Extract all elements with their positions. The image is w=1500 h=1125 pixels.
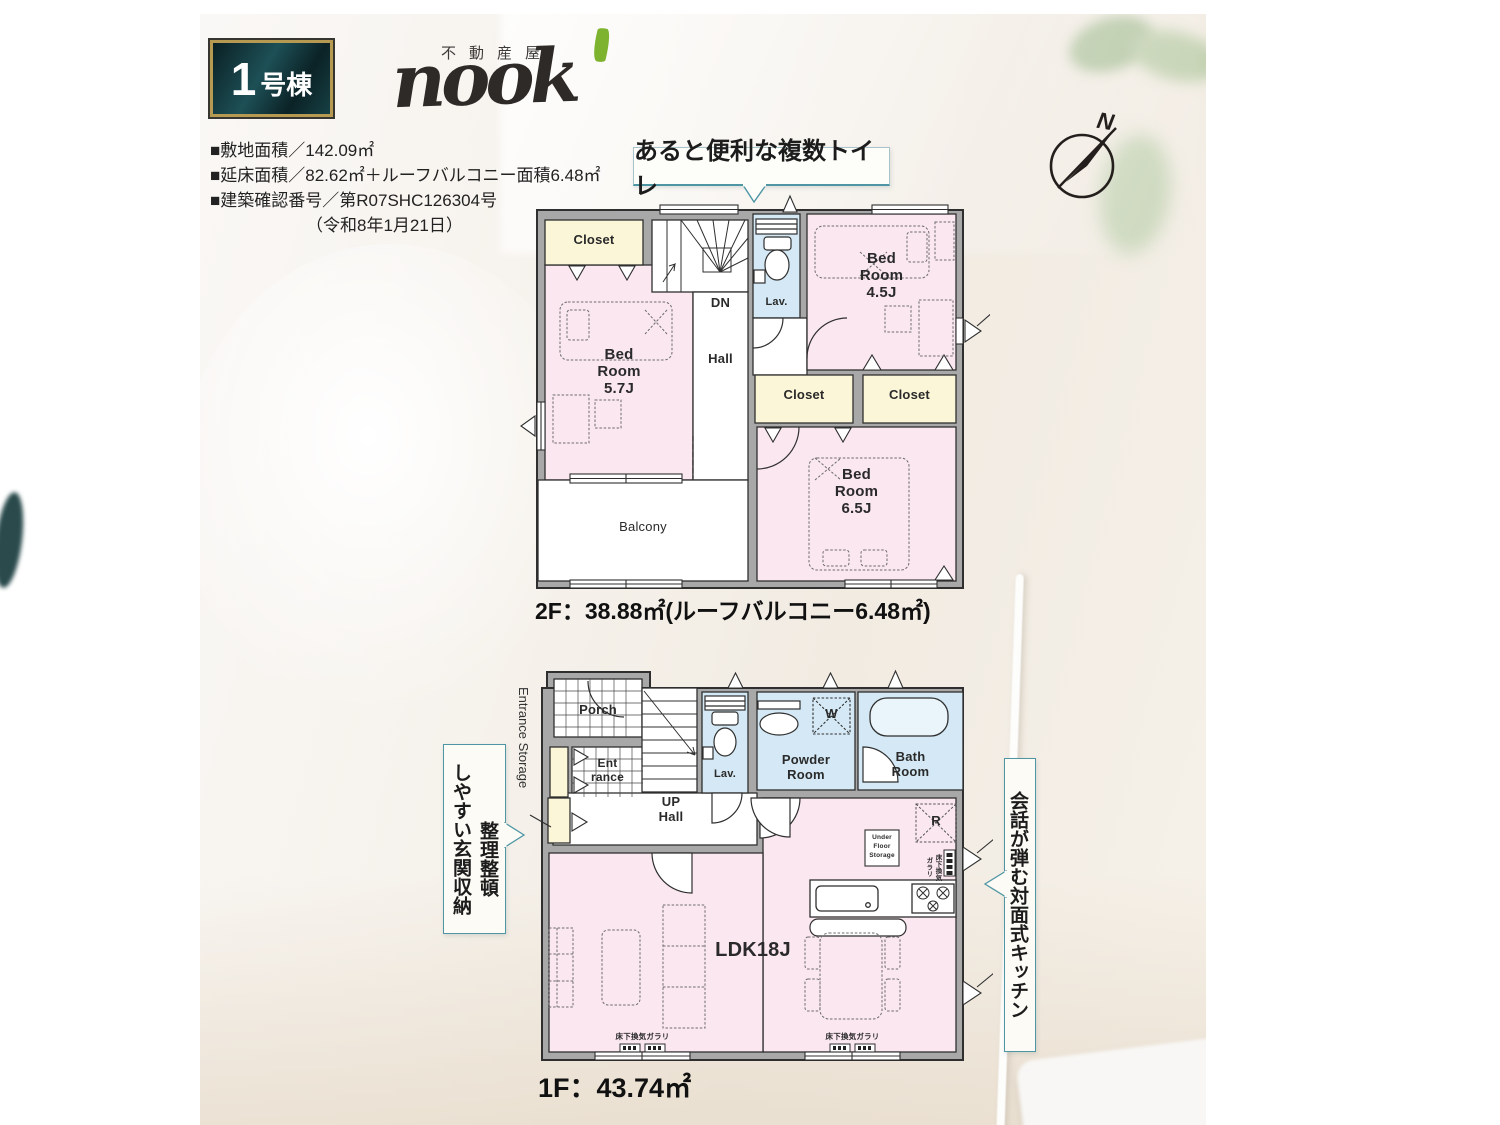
- room-label-bath: Bath Room: [858, 750, 963, 780]
- floor2-plan: Closet DN Hall Lav. Bed Room 4.5J Bed Ro…: [515, 190, 990, 595]
- logo-brand: nook: [391, 33, 578, 125]
- badge-suffix: 号棟: [260, 55, 312, 102]
- vent-label-right: 床下換気ガラリ: [805, 1033, 900, 1042]
- callout-kitchen: 会話が弾む対面式キッチン: [1004, 758, 1036, 1052]
- info-floor-area: ■延床面積／82.62㎡＋ルーフバルコニー面積6.48㎡: [210, 164, 601, 189]
- vent-label-left: 床下換気ガラリ: [595, 1033, 690, 1042]
- room-label-hall-2f: Hall: [693, 352, 748, 367]
- room-label-up-hall: UP Hall: [642, 795, 700, 825]
- callout-kitchen-tail: [983, 870, 1007, 898]
- room-label-entrance: Ent rance: [572, 757, 643, 784]
- room-label-bedroom-45: Bed Room 4.5J: [807, 250, 956, 301]
- room-label-washer: W: [813, 707, 850, 722]
- room-label-bedroom-65: Bed Room 6.5J: [757, 466, 956, 517]
- counter-bench: [810, 919, 906, 936]
- callout-entrance-line2: しやすい玄関収納: [447, 753, 474, 925]
- room-label-lav-2f: Lav.: [753, 296, 800, 309]
- room-label-closet-1: Closet: [755, 388, 853, 403]
- room-label-under-floor: Under Floor Storage: [865, 834, 899, 860]
- room-label-dn: DN: [693, 296, 748, 311]
- floor1-plan: Porch Ent rance UP Hall Lav. Powder Room…: [518, 665, 993, 1070]
- bathtub-icon: [870, 698, 948, 736]
- info-site-area: ■敷地面積／142.09㎡: [210, 139, 601, 164]
- flyer-page: 1 号棟 不動産屋 nook ■敷地面積／142.09㎡ ■延床面積／82.62…: [0, 0, 1500, 1125]
- side-vent: [944, 850, 955, 876]
- room-label-closet-2: Closet: [863, 388, 956, 403]
- building-number-badge: 1 号棟: [210, 40, 333, 117]
- entrance-storage-side-label: Entrance Storage: [516, 687, 531, 788]
- callout-entrance-tail: [504, 822, 526, 848]
- callout-entrance-line1: 整理整頓: [474, 753, 501, 925]
- room-label-ldk: LDK18J: [698, 939, 808, 962]
- room-label-powder: Powder Room: [757, 753, 855, 783]
- floor1-area-label: 1F：43.74㎡: [538, 1066, 691, 1105]
- room-label-bedroom-57: Bed Room 5.7J: [545, 346, 693, 397]
- badge-number: 1: [231, 56, 257, 102]
- room-label-lav-1f: Lav.: [702, 768, 748, 781]
- vent-label-side: 床下換気 ガラリ: [922, 846, 942, 888]
- bg-dark-sliver: [0, 491, 28, 589]
- callout-entrance-storage: 整理整頓 しやすい玄関収納: [443, 744, 506, 934]
- floor2-area-label: 2F：38.88㎡(ルーフバルコニー6.48㎡): [535, 592, 931, 626]
- room-label-fridge: R: [916, 814, 956, 829]
- callout-kitchen-text: 会話が弾む対面式キッチン: [1004, 767, 1031, 1043]
- room-label-porch: Porch: [554, 703, 642, 718]
- room-label-balcony: Balcony: [538, 520, 748, 535]
- callout-toilet: あると便利な複数トイレ: [633, 147, 890, 186]
- sink-icon: [758, 701, 800, 735]
- room-label-closet-tl: Closet: [545, 233, 643, 248]
